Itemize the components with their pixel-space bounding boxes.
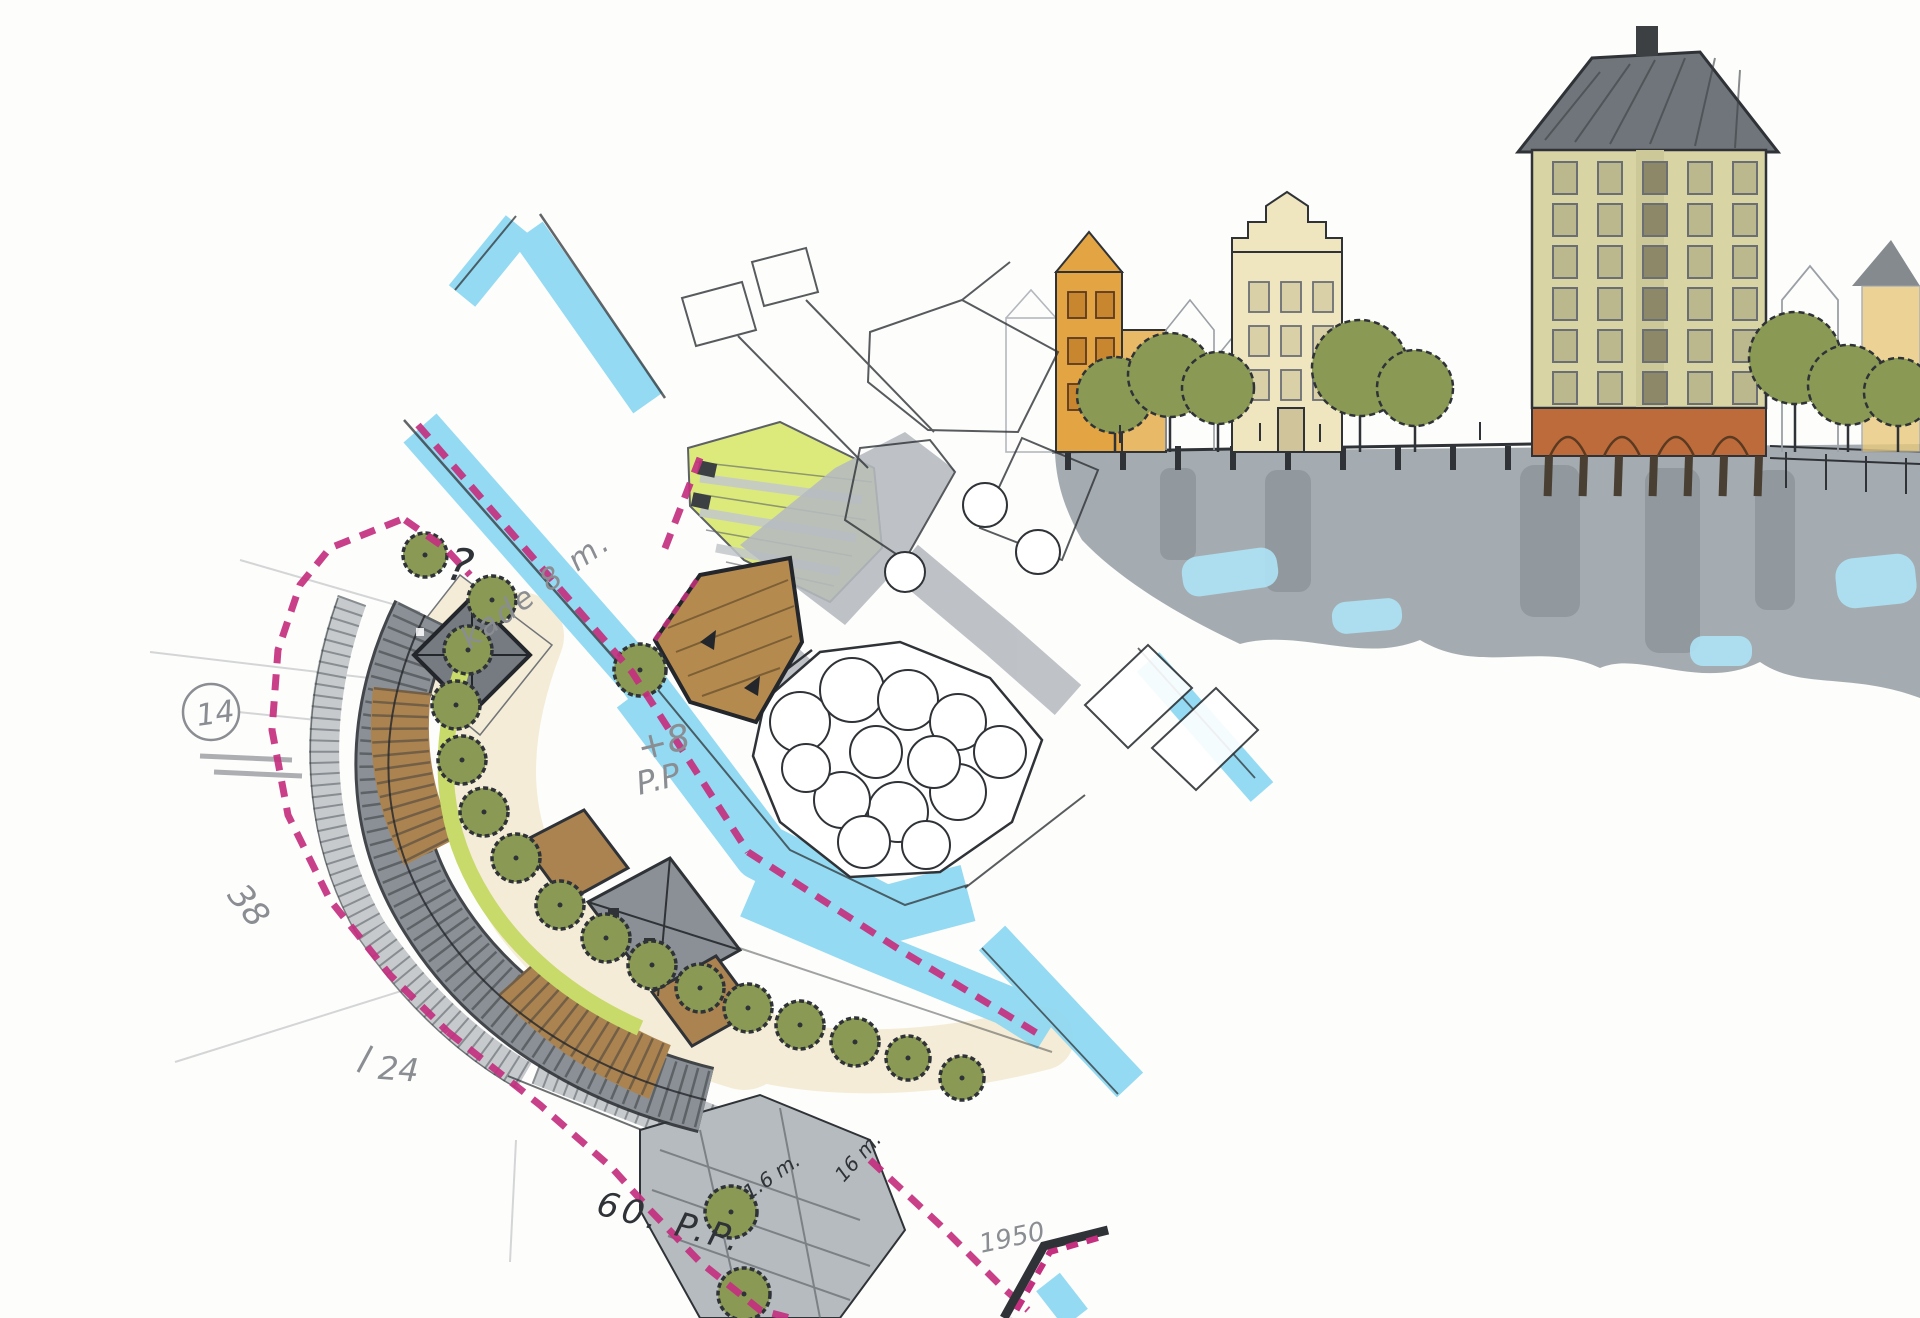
- stepped-window: [1281, 326, 1301, 356]
- count-left-label: 38: [219, 876, 277, 935]
- tree-center: [638, 668, 643, 673]
- outline-tree: [963, 483, 1007, 527]
- warehouse-window: [1553, 246, 1577, 278]
- stepped-window: [1249, 326, 1269, 356]
- outline-tree: [1016, 530, 1060, 574]
- warehouse-window: [1553, 372, 1577, 404]
- tree: [831, 1018, 879, 1066]
- quay-trees: [1077, 312, 1920, 452]
- cloud-tree: [820, 658, 884, 722]
- warehouse-window: [1733, 246, 1757, 278]
- cloud-tree: [974, 726, 1026, 778]
- warehouse-window: [1553, 162, 1577, 194]
- warehouse-window: [1643, 204, 1667, 236]
- orange-window: [1068, 338, 1086, 364]
- warehouse-window: [1688, 246, 1712, 278]
- tree: [628, 941, 676, 989]
- warehouse-window: [1553, 288, 1577, 320]
- pencil-strokes: [200, 756, 302, 776]
- warehouse-window: [1688, 204, 1712, 236]
- tree-center: [960, 1076, 965, 1081]
- tree: [614, 644, 666, 696]
- warehouse-chimney: [1636, 26, 1658, 56]
- stepped-window: [1281, 282, 1301, 312]
- warehouse-window: [1643, 330, 1667, 362]
- pile: [1684, 456, 1693, 496]
- tree: [886, 1036, 930, 1080]
- canal-bottom-edge: [1048, 1282, 1076, 1318]
- warehouse-window: [1688, 288, 1712, 320]
- tree-center: [746, 1006, 751, 1011]
- warehouse-roof: [1518, 52, 1778, 152]
- warehouse-window: [1553, 330, 1577, 362]
- tree-center: [742, 1292, 747, 1297]
- cloud-tree: [782, 744, 830, 792]
- tree: [718, 1268, 770, 1318]
- tree-center: [482, 810, 487, 815]
- warehouse-window: [1688, 372, 1712, 404]
- site-plan-sketch: 14 ? kade 8 m. +8 P.P 38 24 60. P.P. 1.6…: [0, 0, 1920, 1318]
- outline-tree: [885, 552, 925, 592]
- stepped-window: [1313, 282, 1333, 312]
- quay-post: [1505, 446, 1511, 470]
- warehouse-window: [1733, 288, 1757, 320]
- ref-number-label: 14: [194, 694, 237, 734]
- warehouse-window: [1553, 204, 1577, 236]
- tree: [432, 681, 480, 729]
- tree-center: [853, 1040, 858, 1045]
- stepped-window: [1281, 370, 1301, 400]
- pile: [1579, 456, 1588, 496]
- tree-center: [460, 758, 465, 763]
- tree-center: [906, 1056, 911, 1061]
- tree: [403, 533, 447, 577]
- warehouse-window: [1688, 162, 1712, 194]
- tree-center: [423, 553, 428, 558]
- warehouse-window: [1643, 288, 1667, 320]
- canal-upper-b: [528, 232, 648, 403]
- tree: [940, 1056, 984, 1100]
- tree: [492, 834, 540, 882]
- tree-center: [454, 703, 459, 708]
- tree-center: [604, 936, 609, 941]
- tick-mark: [358, 1046, 372, 1072]
- warehouse-window: [1598, 246, 1622, 278]
- pile: [1754, 456, 1763, 496]
- pile: [1544, 456, 1553, 496]
- warehouse-window: [1688, 330, 1712, 362]
- cloud-tree: [878, 670, 938, 730]
- warehouse-window: [1733, 204, 1757, 236]
- stepped-window: [1249, 282, 1269, 312]
- warehouse-window: [1598, 372, 1622, 404]
- quay-post: [1395, 446, 1401, 470]
- warehouse-window: [1598, 330, 1622, 362]
- quay-post: [1450, 446, 1456, 470]
- orange-window: [1096, 292, 1114, 318]
- pile: [1649, 456, 1658, 496]
- pile: [1719, 456, 1728, 496]
- cloud-tree: [902, 821, 950, 869]
- tree-center: [798, 1023, 803, 1028]
- tree: [582, 914, 630, 962]
- tree-crown: [1182, 352, 1254, 424]
- warehouse-window: [1598, 204, 1622, 236]
- warehouse-window: [1643, 246, 1667, 278]
- sketch-page: 14 ? kade 8 m. +8 P.P 38 24 60. P.P. 1.6…: [0, 0, 1920, 1318]
- warehouse-window: [1598, 288, 1622, 320]
- tree: [724, 984, 772, 1032]
- canal-upper-a: [462, 226, 519, 296]
- tree: [536, 881, 584, 929]
- cloud-tree: [850, 726, 902, 778]
- warehouse-window: [1643, 162, 1667, 194]
- tree: [1377, 350, 1453, 452]
- tree-crown: [1377, 350, 1453, 426]
- tree-center: [698, 986, 703, 991]
- cloud-tree: [838, 816, 890, 868]
- pile: [1614, 456, 1623, 496]
- warehouse-window: [1598, 162, 1622, 194]
- waterfront-elevation-sketch: [1006, 26, 1920, 698]
- warehouse-window: [1733, 162, 1757, 194]
- tree: [776, 1001, 824, 1049]
- tree: [676, 964, 724, 1012]
- tree-center: [650, 963, 655, 968]
- warehouse-window: [1643, 372, 1667, 404]
- orange-window: [1068, 292, 1086, 318]
- cloud-tree: [908, 736, 960, 788]
- stepped-gable-house: [1232, 192, 1342, 452]
- quay-post: [1175, 446, 1181, 470]
- tree-center: [729, 1210, 734, 1215]
- warehouse-ground-floor: [1532, 408, 1766, 456]
- tree-center: [558, 903, 563, 908]
- tree: [460, 788, 508, 836]
- tree: [438, 736, 486, 784]
- tree-center: [514, 856, 519, 861]
- count-bottom-left-label: 24: [377, 1049, 420, 1090]
- tree-crown: [1864, 358, 1920, 426]
